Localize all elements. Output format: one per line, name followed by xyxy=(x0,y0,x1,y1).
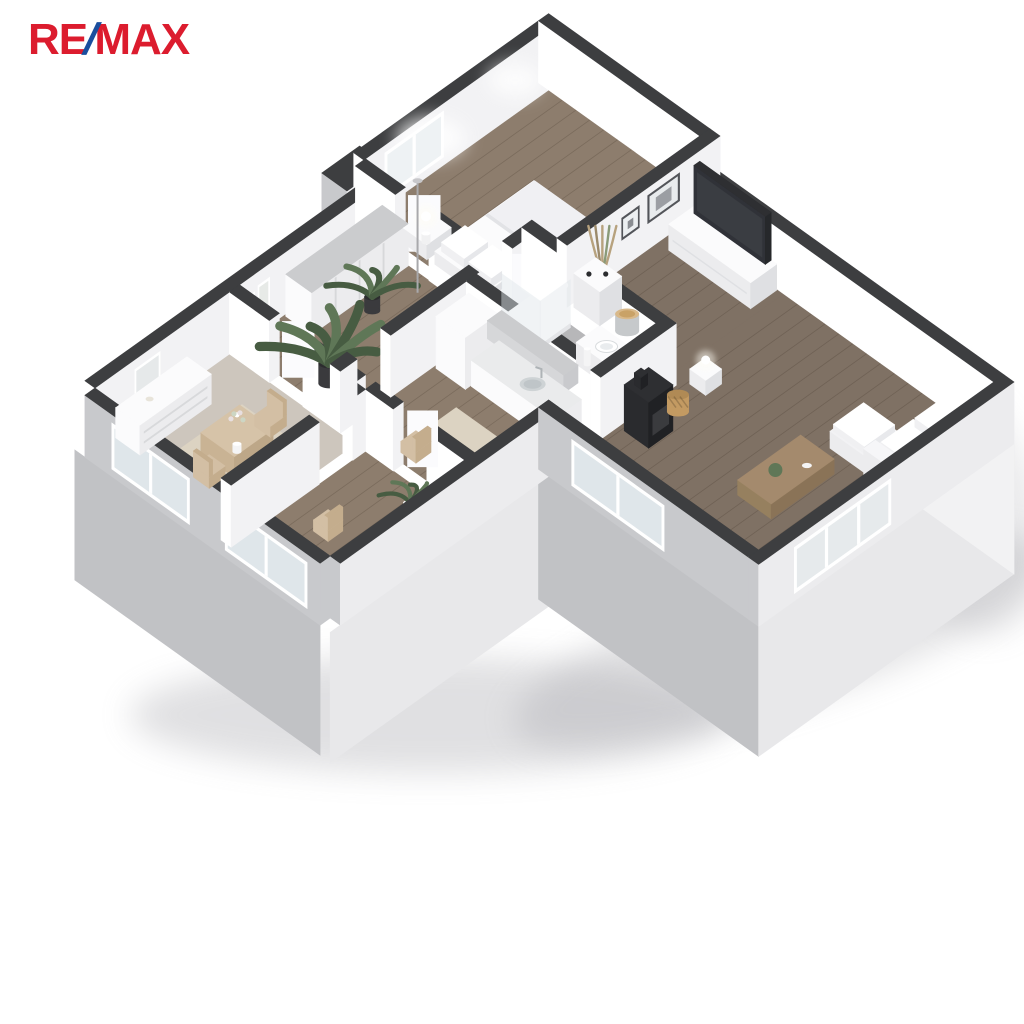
flower xyxy=(237,410,242,415)
wall-west-face xyxy=(330,364,340,433)
tv-south-face xyxy=(765,212,771,264)
dresser-decor xyxy=(146,397,154,402)
sparkle xyxy=(556,268,561,273)
wall-west-face xyxy=(330,556,340,625)
round-table-top-weave xyxy=(619,310,635,317)
wall-south-face xyxy=(393,402,403,471)
lamp-bulb xyxy=(701,356,710,365)
lamp-bulb xyxy=(421,211,431,221)
vase-base xyxy=(232,450,241,454)
chair-back-south-face xyxy=(209,460,212,477)
flower xyxy=(240,417,245,422)
sparkle xyxy=(541,259,547,265)
sink-bowl xyxy=(524,380,542,389)
sparkle xyxy=(551,261,555,265)
window-mullion xyxy=(413,135,416,175)
wall-west-face xyxy=(221,478,231,547)
table-plant xyxy=(768,463,782,477)
round-table xyxy=(615,309,639,337)
knob xyxy=(586,271,591,276)
wall-west-face xyxy=(749,557,759,626)
basin-bowl xyxy=(600,343,613,350)
lamp-top xyxy=(421,231,430,235)
window-mullion xyxy=(825,528,828,568)
wardrobe-door-seam xyxy=(359,260,360,299)
floor-lamp-head xyxy=(413,178,423,183)
vanity-lamp-body xyxy=(584,349,591,365)
wall-west-face xyxy=(591,370,601,439)
flower xyxy=(231,411,236,416)
sparkle xyxy=(540,267,543,270)
floorplan-rendering xyxy=(0,0,1024,1024)
basket xyxy=(667,390,689,417)
basket-base xyxy=(667,407,689,417)
knob xyxy=(603,271,608,276)
wardrobe-door-seam xyxy=(383,243,384,282)
lamp-base xyxy=(421,240,430,244)
sparkle xyxy=(544,276,548,280)
vanity-lamp-top xyxy=(584,347,591,350)
window-mullion xyxy=(857,505,860,545)
plant-pot-base xyxy=(364,307,380,314)
flower xyxy=(228,416,233,421)
chair-back-south-face xyxy=(283,400,286,417)
window-mullion xyxy=(617,476,620,516)
basket-top xyxy=(667,390,689,400)
round-table-base xyxy=(615,326,639,337)
vanity-lamp-base xyxy=(584,363,591,366)
wall-south-face xyxy=(320,556,330,625)
table-dish xyxy=(802,463,812,468)
wall-light-bloom xyxy=(489,64,541,96)
wall-south-face xyxy=(340,359,357,433)
sparkle xyxy=(548,271,552,275)
floorplan-page: RE/MAX xyxy=(0,0,1024,1024)
vase-top xyxy=(232,442,241,446)
window-mullion xyxy=(149,454,152,494)
stove xyxy=(624,367,673,448)
window-mullion xyxy=(265,536,268,576)
wall-west-face xyxy=(381,328,391,397)
